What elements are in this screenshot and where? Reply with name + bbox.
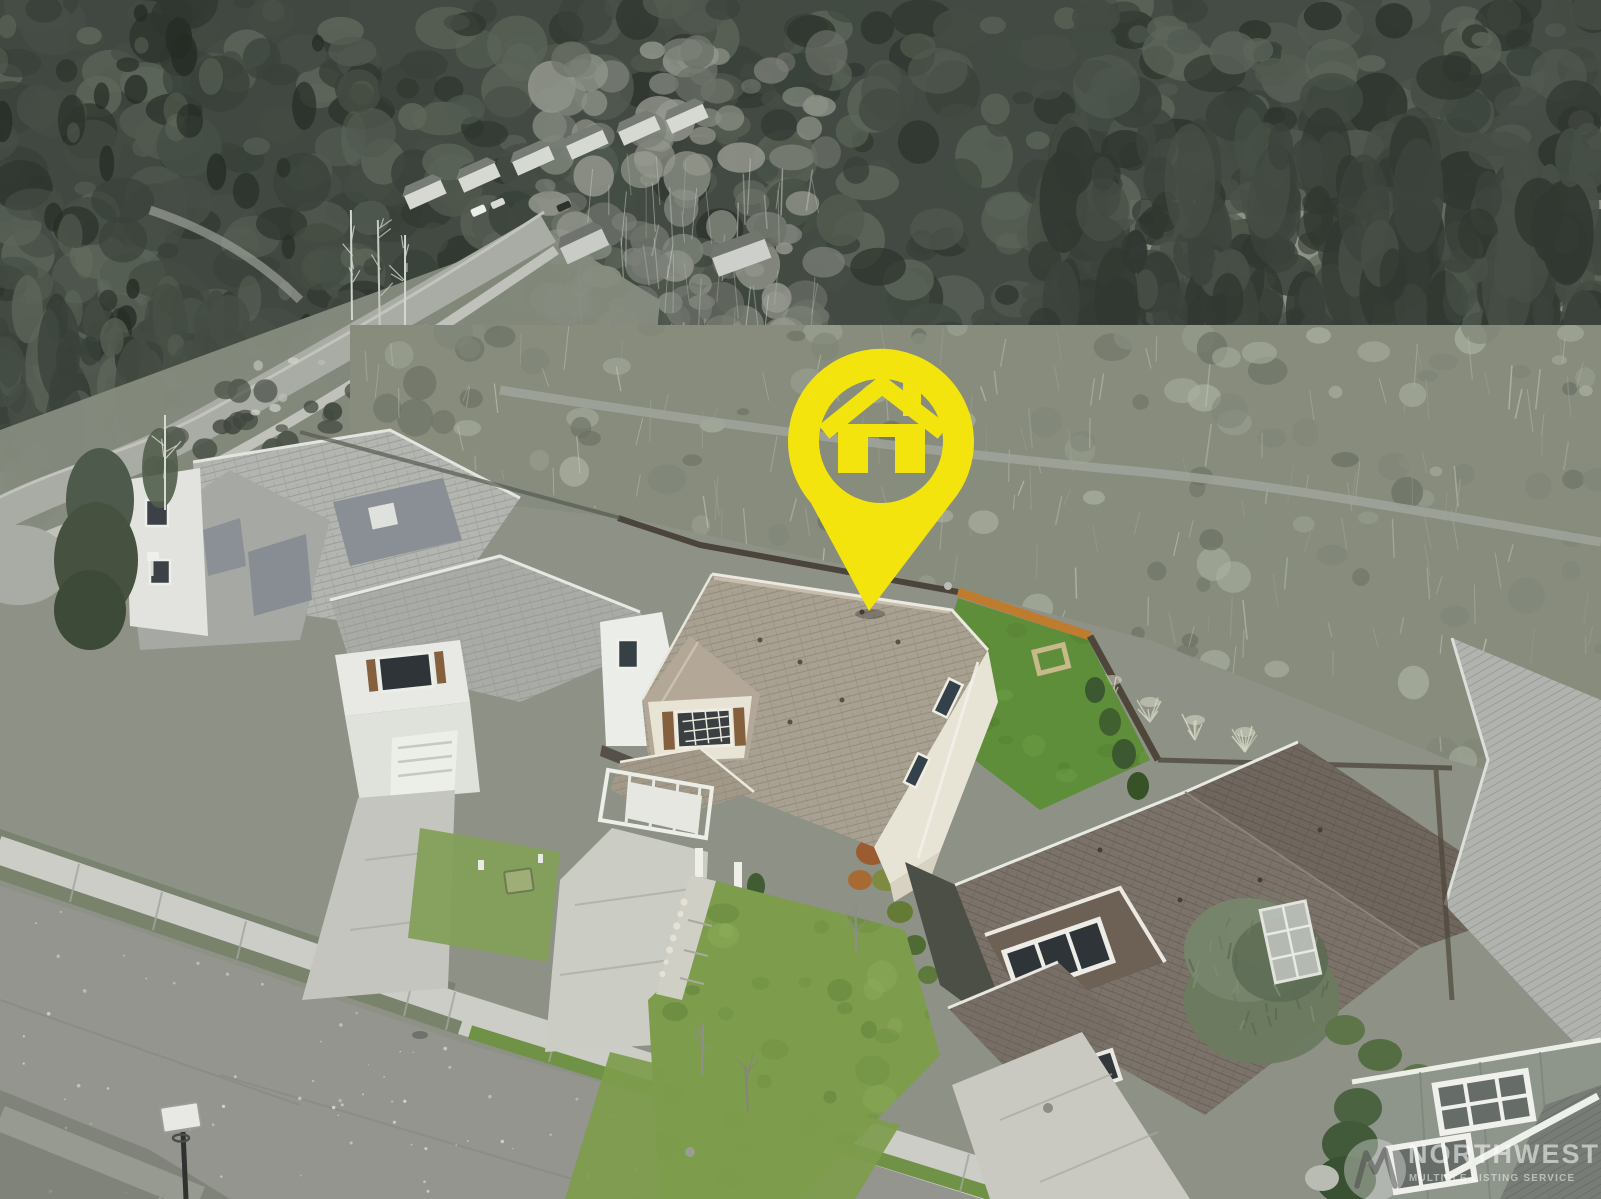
satellite-dish: [944, 582, 952, 590]
watermark-title: NORTHWEST: [1408, 1139, 1600, 1169]
aerial-photo: NORTHWEST MULTIPLE LISTING SERVICE: [0, 0, 1601, 1199]
corner-window: [1435, 1071, 1533, 1133]
utility-box: [504, 868, 534, 894]
aerial-photo-canvas: NORTHWEST MULTIPLE LISTING SERVICE: [0, 0, 1601, 1199]
watermark-subtitle: MULTIPLE LISTING SERVICE: [1409, 1173, 1575, 1184]
left-lawn: [408, 828, 560, 962]
manhole: [412, 1031, 428, 1039]
